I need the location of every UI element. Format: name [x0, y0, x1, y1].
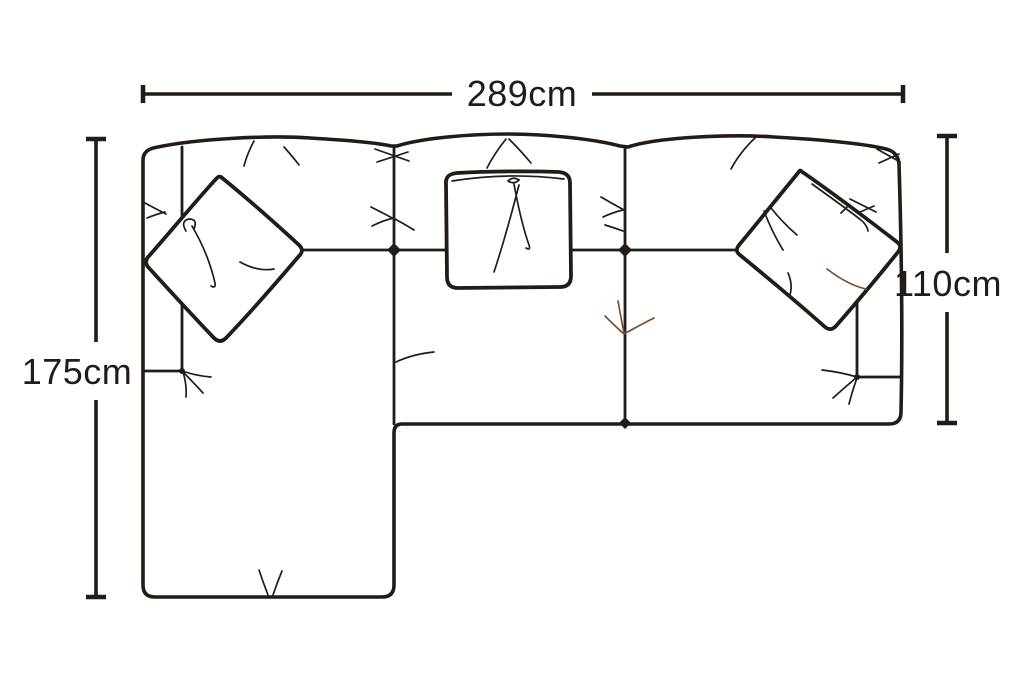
depth-left-dimension-label: 175cm	[22, 351, 133, 392]
sofa-top-view-drawing: 289cm 175cm 110cm	[0, 0, 1024, 683]
sofa-dimension-diagram: 289cm 175cm 110cm	[0, 0, 1024, 683]
center-throw-pillow	[446, 171, 571, 288]
depth-right-dimension-label: 110cm	[894, 263, 1002, 304]
width-dimension-label: 289cm	[467, 73, 578, 114]
